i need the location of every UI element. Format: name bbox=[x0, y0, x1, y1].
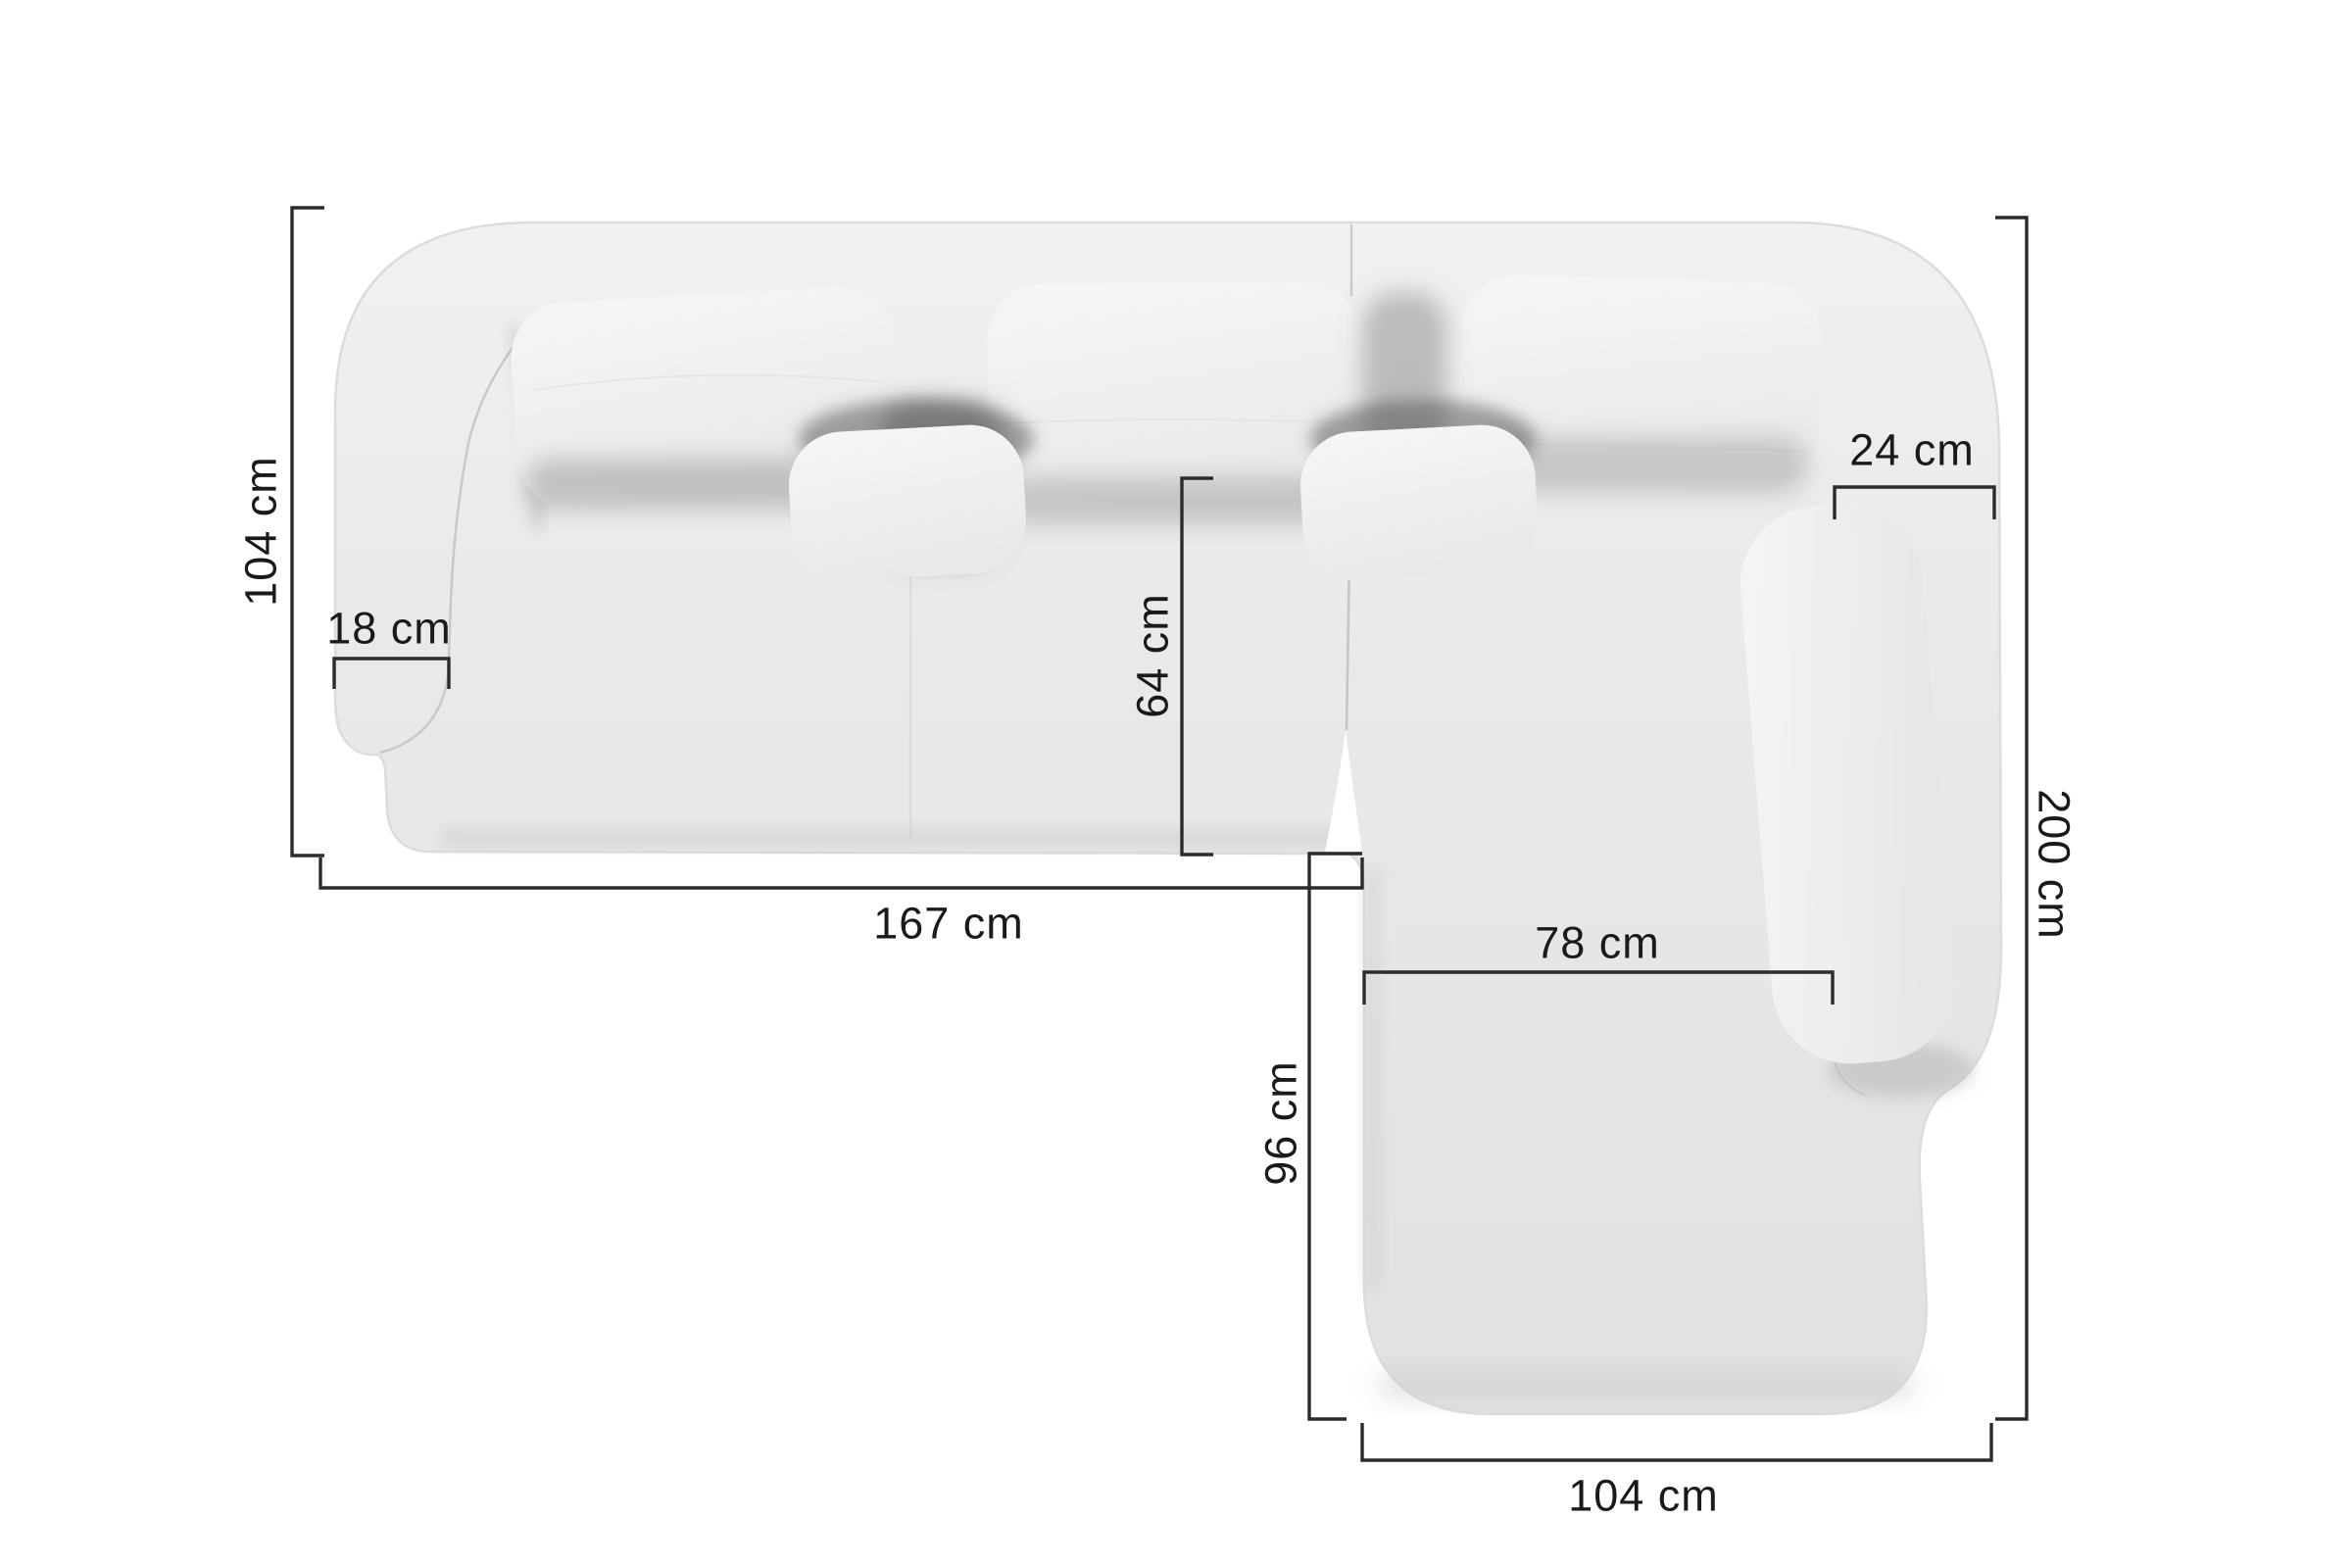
headrest-cushion-left bbox=[786, 422, 1029, 583]
shadow-under-middle-cushion bbox=[1004, 476, 1347, 525]
dimension-line-chaise-width bbox=[1362, 1423, 1991, 1460]
dimension-label-chaise-seat-depth: 96 cm bbox=[1259, 1060, 1303, 1186]
dimension-label-left-armrest: 18 cm bbox=[326, 607, 452, 651]
seat-front-shade bbox=[441, 829, 1343, 847]
headrest-cushion-right bbox=[1298, 422, 1541, 583]
dimension-label-chaise-width: 104 cm bbox=[1568, 1474, 1719, 1518]
chaise-left-shade bbox=[1365, 867, 1381, 1289]
dimension-line-front-length bbox=[320, 857, 1362, 888]
dimension-label-chaise-seat-width: 78 cm bbox=[1535, 921, 1660, 965]
dimension-line-chaise-seat-depth bbox=[1309, 854, 1362, 1419]
chaise-bottom-shade bbox=[1382, 1370, 1911, 1399]
dimension-label-seat-depth: 64 cm bbox=[1131, 593, 1175, 718]
dimension-label-left-depth: 104 cm bbox=[239, 456, 283, 607]
dimension-line-left-depth bbox=[292, 208, 324, 856]
sofa-illustration bbox=[0, 0, 2352, 1568]
dimension-label-front-length: 167 cm bbox=[873, 902, 1024, 946]
sofa-dimension-diagram: 104 cm 18 cm 167 cm 64 cm 24 cm 200 cm 7… bbox=[0, 0, 2352, 1568]
dimension-label-side-length: 200 cm bbox=[2033, 789, 2077, 940]
dimension-label-right-armrest: 24 cm bbox=[1849, 428, 1975, 472]
